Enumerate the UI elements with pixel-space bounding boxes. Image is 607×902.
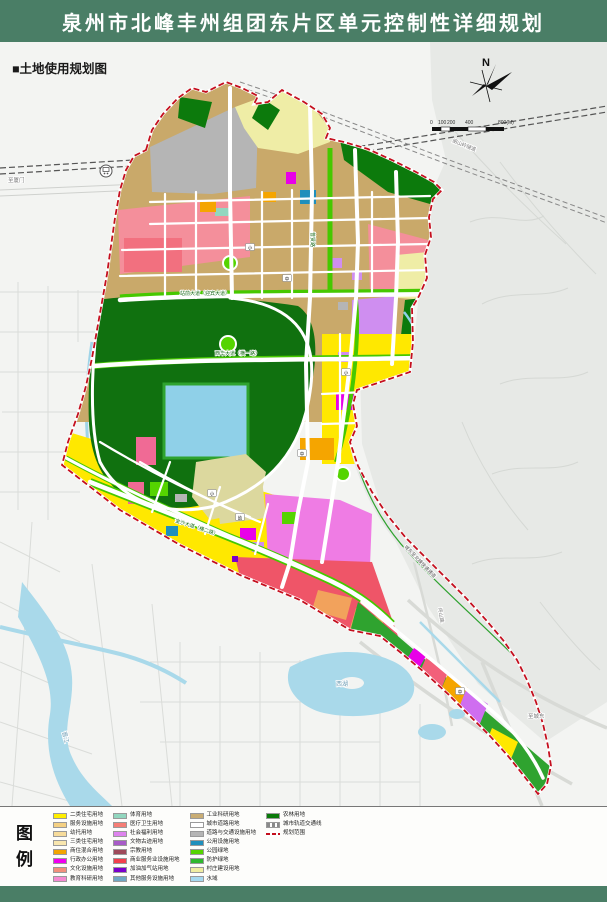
legend-label: 城市轨道交通线	[283, 822, 322, 828]
legend-label: 幼托用地	[70, 831, 92, 837]
legend-item: 防护绿地	[190, 858, 257, 865]
legend-item: 医疗卫生用地	[113, 822, 180, 829]
legend-item: 水域	[190, 876, 257, 883]
legend-item: 规划范围	[266, 831, 322, 838]
scale-tick: 200	[447, 120, 456, 126]
legend-item: 行政办公用地	[53, 858, 103, 865]
legend-label: 水域	[207, 877, 218, 883]
legend-label: 防护绿地	[207, 858, 229, 864]
legend-swatch-icon	[113, 867, 127, 873]
legend-label: 规划范围	[283, 831, 305, 837]
road-label-to-chengdong: 至城东	[528, 712, 545, 720]
legend-label: 社会福利用地	[130, 831, 163, 837]
legend-swatch-icon	[113, 813, 127, 819]
legend-item: 教育科研用地	[53, 876, 103, 883]
legend-item: 加油加气站用地	[113, 867, 180, 874]
legend-label: 其他服务设施用地	[130, 877, 174, 883]
legend-label: 体育用地	[130, 813, 152, 819]
legend-item: 村庄建设用地	[190, 867, 257, 874]
legend-item: 服务设施用地	[53, 822, 103, 829]
legend-item: 二类住宅用地	[53, 812, 103, 819]
legend-swatch-icon	[53, 858, 67, 864]
facility-chip: 中	[458, 688, 463, 695]
facility-chip: 幼	[238, 514, 243, 521]
facility-chip: 中	[285, 275, 290, 282]
scale-tick: 800(M)	[498, 120, 514, 126]
legend-item: 宗教用地	[113, 849, 180, 856]
legend-title: 图 例	[16, 825, 33, 868]
legend-swatch-icon	[53, 849, 67, 855]
legend-title-char: 图	[16, 825, 33, 842]
legend-item: 商住混合用地	[53, 849, 103, 856]
legend-item: 城市道路用地	[190, 822, 257, 829]
legend-label: 文物古迹用地	[130, 840, 163, 846]
legend-label: 加油加气站用地	[130, 867, 169, 873]
legend-column: 农林用地城市轨道交通线规划范围	[266, 812, 322, 837]
legend-swatch-icon	[53, 813, 67, 819]
legend-label: 宗教用地	[130, 849, 152, 855]
legend-swatch-icon	[53, 822, 67, 828]
legend-swatch-icon	[113, 822, 127, 828]
legend-label: 服务设施用地	[70, 822, 103, 828]
facility-chip: 小	[210, 490, 215, 497]
legend-swatch-icon	[53, 867, 67, 873]
facility-chip: 中	[300, 450, 305, 457]
legend-column: 工业科研用地城市道路用地道路与交通设施用地公用设施用地公园绿地防护绿地村庄建设用…	[190, 812, 257, 882]
legend-label: 二类住宅用地	[70, 813, 103, 819]
road-label-zhanqian: 站前大道（迎宾大道）	[180, 290, 230, 297]
legend-swatch-icon	[190, 876, 204, 882]
legend-swatch-icon	[266, 813, 280, 819]
title-bar: 泉州市北峰丰州组团东片区单元控制性详细规划	[0, 0, 607, 42]
legend-swatch-icon	[113, 831, 127, 837]
legend-label: 村庄建设用地	[207, 867, 240, 873]
map-area: ■土地使用规划图 N 0 100 200 400 800(M) 站前大道（迎宾大…	[0, 42, 607, 806]
park-lake	[164, 384, 248, 458]
legend-item: 城市轨道交通线	[266, 822, 322, 829]
legend-item: 三类住宅用地	[53, 840, 103, 847]
legend-item: 商业服务业设施用地	[113, 858, 180, 865]
legend-title-char: 例	[16, 851, 33, 868]
scale-tick: 0	[430, 120, 433, 126]
legend-swatch-icon	[190, 813, 204, 819]
facility-chip: 小	[344, 369, 349, 376]
legend-swatch-icon	[190, 858, 204, 864]
legend-swatch-icon	[190, 831, 204, 837]
legend-item: 道路与交通设施用地	[190, 831, 257, 838]
legend-item: 农林用地	[266, 812, 322, 819]
legend-item: 公用设施用地	[190, 840, 257, 847]
legend-swatch-icon	[113, 858, 127, 864]
legend-item: 体育用地	[113, 812, 180, 819]
legend-swatch-icon	[53, 876, 67, 882]
section-label: ■土地使用规划图	[12, 61, 107, 76]
legend-swatch-icon	[113, 876, 127, 882]
legend-label: 文化设施用地	[70, 867, 103, 873]
scale-tick: 100	[438, 120, 447, 126]
place-label-xihu: 西湖	[336, 680, 348, 688]
legend-column: 二类住宅用地服务设施用地幼托用地三类住宅用地商住混合用地行政办公用地文化设施用地…	[53, 812, 103, 882]
planning-document-page: 泉州市北峰丰州组团东片区单元控制性详细规划	[0, 0, 607, 902]
legend-label: 道路与交通设施用地	[207, 831, 257, 837]
legend-label: 三类住宅用地	[70, 840, 103, 846]
legend-swatch-icon	[113, 849, 127, 855]
page-title: 泉州市北峰丰州组团东片区单元控制性详细规划	[62, 7, 545, 36]
legend-item: 公园绿地	[190, 849, 257, 856]
legend-item: 社会福利用地	[113, 831, 180, 838]
legend-label: 商住混合用地	[70, 849, 103, 855]
scale-bar: 0 100 200 400 800(M)	[430, 120, 514, 131]
legend-label: 农林用地	[283, 813, 305, 819]
legend-item: 文化设施用地	[53, 867, 103, 874]
legend-swatch-icon	[113, 840, 127, 846]
footer-bar	[0, 886, 607, 902]
legend-swatch-icon	[266, 822, 280, 828]
legend-swatch-icon	[266, 831, 280, 837]
legend-swatch-icon	[190, 849, 204, 855]
legend-item: 其他服务设施用地	[113, 876, 180, 883]
legend-item: 工业科研用地	[190, 812, 257, 819]
road-label-to-xiamen: 至厦门	[8, 176, 25, 184]
north-label: N	[482, 57, 490, 69]
legend-item: 幼托用地	[53, 831, 103, 838]
legend-label: 教育科研用地	[70, 877, 103, 883]
road-label-xihua: 西华大道（横一路）	[215, 350, 260, 357]
legend-item: 文物古迹用地	[113, 840, 180, 847]
legend-label: 公园绿地	[207, 849, 229, 855]
legend-label: 行政办公用地	[70, 858, 103, 864]
legend-columns: 二类住宅用地服务设施用地幼托用地三类住宅用地商住混合用地行政办公用地文化设施用地…	[53, 810, 322, 882]
legend-label: 工业科研用地	[207, 813, 240, 819]
legend-swatch-icon	[190, 867, 204, 873]
scale-tick: 400	[465, 120, 474, 126]
facility-chip: 小	[248, 244, 253, 251]
legend-swatch-icon	[53, 840, 67, 846]
legend-swatch-icon	[53, 831, 67, 837]
legend-swatch-icon	[190, 822, 204, 828]
legend-label: 公用设施用地	[207, 840, 240, 846]
legend-swatch-icon	[190, 840, 204, 846]
land-use-map: ■土地使用规划图 N 0 100 200 400 800(M) 站前大道（迎宾大…	[0, 42, 607, 806]
legend-label: 医疗卫生用地	[130, 822, 163, 828]
railway-station-icon	[100, 165, 112, 177]
legend-panel: 图 例 二类住宅用地服务设施用地幼托用地三类住宅用地商住混合用地行政办公用地文化…	[0, 806, 607, 886]
legend-label: 城市道路用地	[207, 822, 240, 828]
legend-label: 商业服务业设施用地	[130, 858, 180, 864]
road-label-puxian: 普贤路	[309, 232, 316, 247]
legend-column: 体育用地医疗卫生用地社会福利用地文物古迹用地宗教用地商业服务业设施用地加油加气站…	[113, 812, 180, 882]
